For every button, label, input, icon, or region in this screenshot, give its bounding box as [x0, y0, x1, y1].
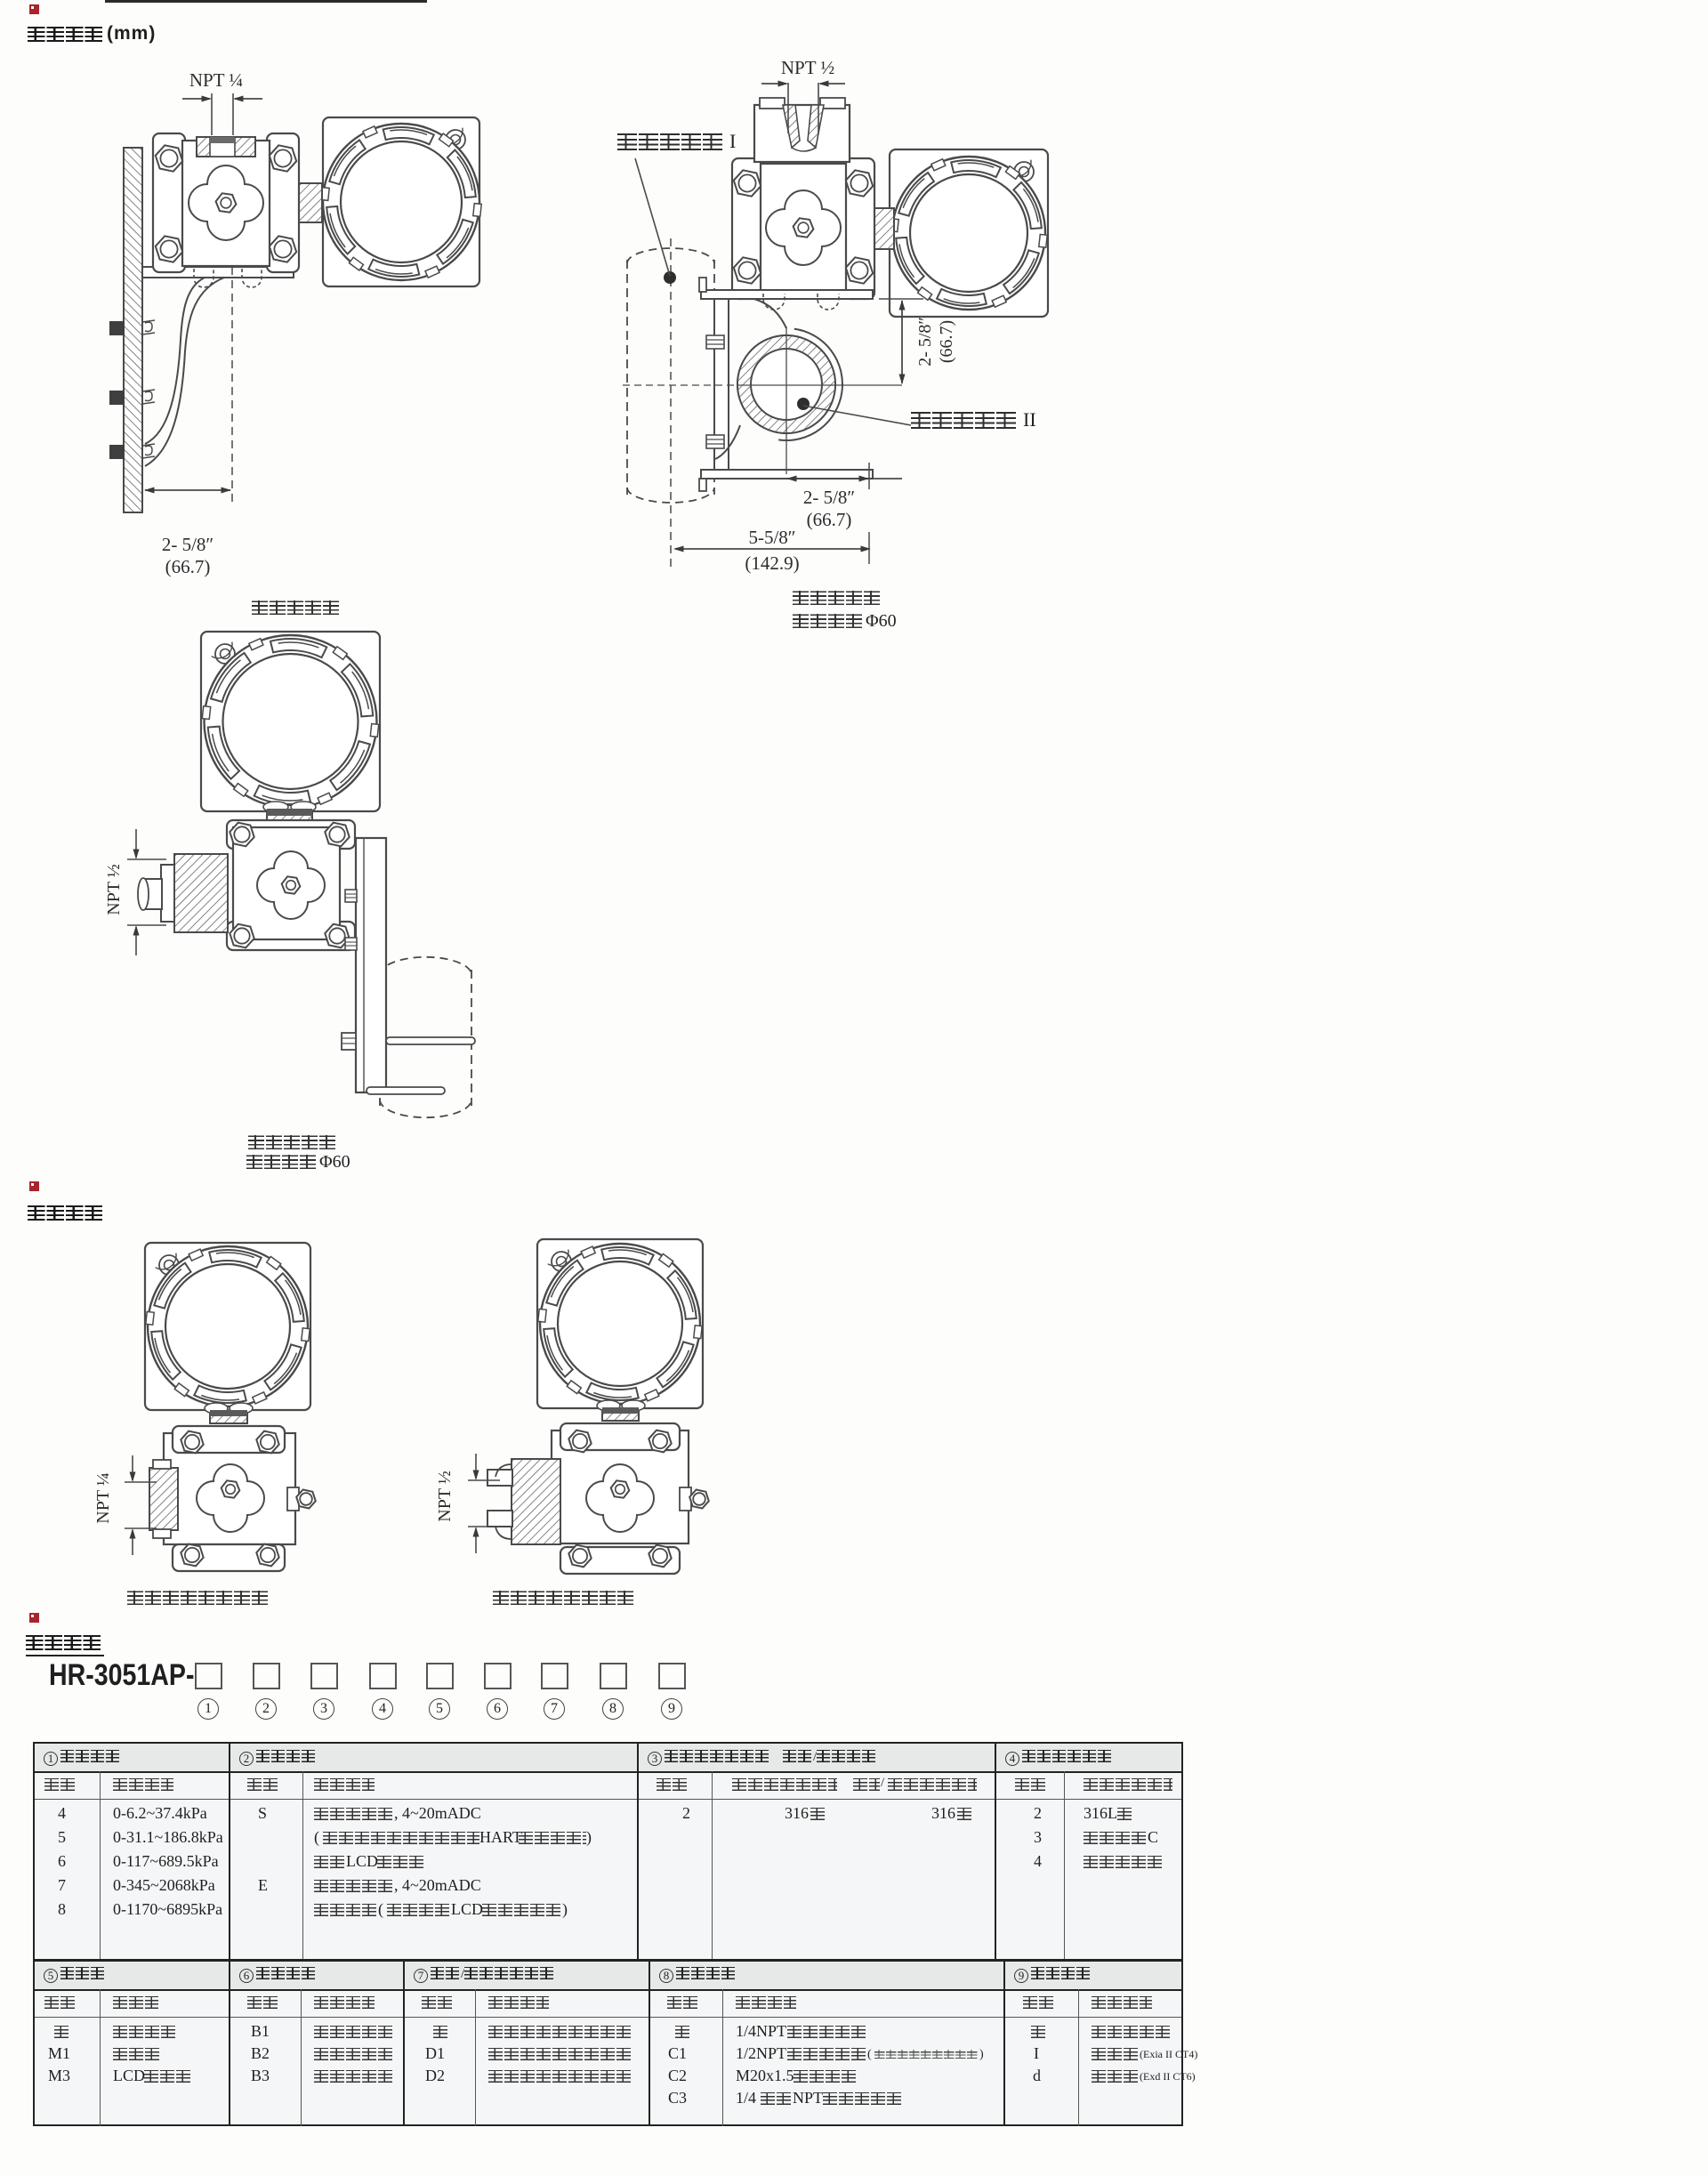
svg-text:(142.9): (142.9): [745, 552, 799, 574]
svg-text:NPT ½: NPT ½: [104, 864, 124, 915]
svg-text:(66.7): (66.7): [165, 556, 211, 577]
svg-text:NPT ½: NPT ½: [781, 57, 834, 78]
svg-text:2- 5/8″: 2- 5/8″: [162, 534, 213, 555]
svg-text:2- 5/8″: 2- 5/8″: [803, 487, 855, 508]
svg-text:2- 5/8″: 2- 5/8″: [915, 317, 935, 367]
svg-text:5-5/8″: 5-5/8″: [748, 527, 795, 548]
svg-text:(66.7): (66.7): [807, 509, 852, 530]
svg-text:NPT ¼: NPT ¼: [189, 69, 243, 91]
svg-text:(66.7): (66.7): [937, 320, 956, 363]
svg-text:NPT ¼: NPT ¼: [93, 1472, 113, 1523]
svg-text:NPT ½: NPT ½: [435, 1471, 455, 1521]
